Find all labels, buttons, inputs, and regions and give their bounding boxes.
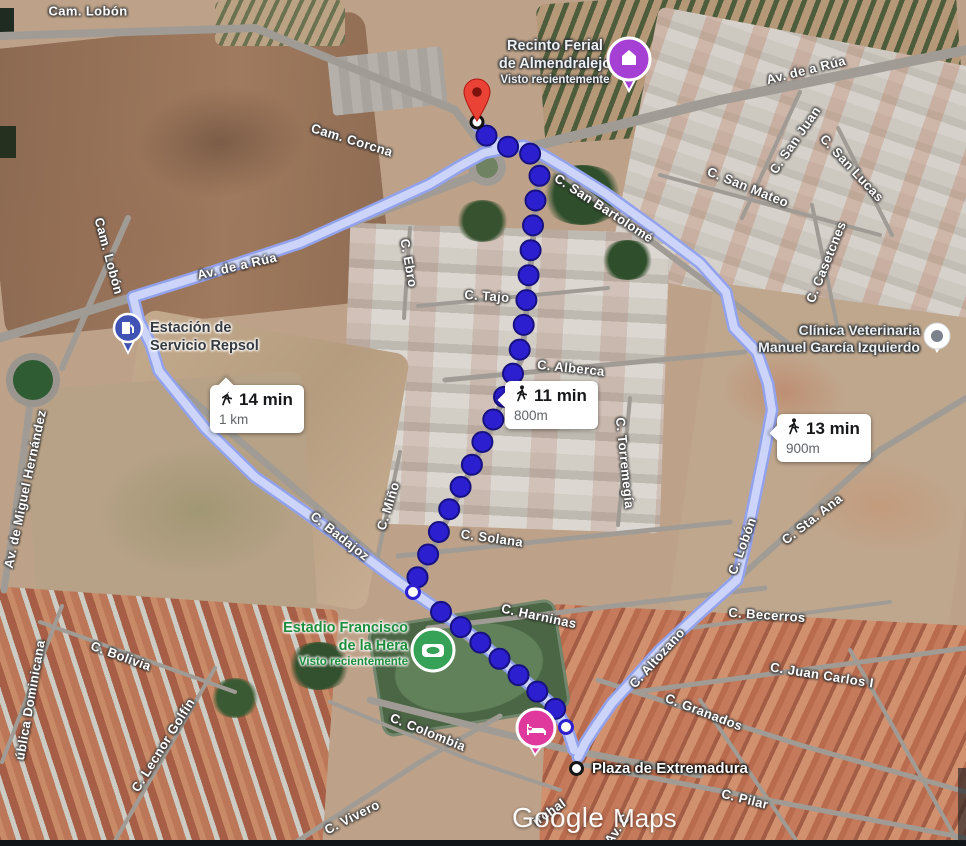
route-dot — [514, 315, 534, 335]
route-dot — [498, 137, 518, 157]
route-dot — [451, 477, 471, 497]
road — [418, 288, 608, 306]
route-via-point — [407, 586, 420, 599]
poi-name: Estación de — [150, 320, 259, 338]
road — [838, 128, 892, 235]
road — [290, 716, 500, 846]
stadium-pin[interactable] — [408, 625, 458, 680]
route-badge-13min[interactable]: 13 min 900m — [777, 414, 871, 462]
route-dot — [472, 432, 492, 452]
route-badge-14min[interactable]: 14 min 1 km — [210, 385, 304, 433]
route-dot — [523, 215, 543, 235]
gas-station-pin[interactable] — [110, 312, 146, 363]
badge-time: 13 min — [806, 419, 860, 439]
route-dot — [429, 522, 449, 542]
route-via-point — [560, 721, 573, 734]
route-dot — [521, 240, 541, 260]
poi-name: Servicio Repsol — [150, 338, 259, 356]
road — [0, 28, 487, 152]
poi-name: Plaza de Extremadura — [592, 760, 748, 777]
poi-clinica-veterinaria[interactable]: Clínica Veterinaria Manuel García Izquie… — [722, 322, 920, 356]
road — [112, 668, 215, 846]
badge-distance: 800m — [514, 408, 587, 423]
route-dot — [519, 265, 539, 285]
poi-plaza-extremadura[interactable]: Plaza de Extremadura — [592, 760, 748, 778]
road — [4, 382, 33, 590]
road — [2, 606, 62, 762]
walking-icon — [514, 385, 528, 407]
destination-pin[interactable] — [461, 77, 493, 128]
route-dot — [510, 340, 530, 360]
road — [445, 352, 745, 380]
route-badge-11min-selected[interactable]: 11 min 800m — [505, 381, 598, 429]
road — [532, 152, 790, 345]
route-dot — [509, 665, 529, 685]
route-dot — [490, 649, 510, 669]
badge-time: 14 min — [239, 390, 293, 410]
route-dot — [516, 290, 536, 310]
screen-edge-bar — [0, 840, 966, 846]
route-dot — [462, 455, 482, 475]
route-dot — [483, 410, 503, 430]
walking-icon — [786, 418, 800, 440]
road — [690, 602, 890, 628]
road — [618, 398, 630, 525]
route-dot — [527, 682, 547, 702]
origin-marker[interactable] — [569, 761, 584, 776]
road — [404, 228, 410, 318]
route-dot — [418, 545, 438, 565]
road — [660, 175, 880, 235]
road — [376, 452, 400, 565]
google-maps-watermark: GoogleMaps — [512, 802, 677, 834]
clinic-dot-icon — [931, 330, 943, 342]
route-dot — [526, 191, 546, 211]
poi-name: Clínica Veterinaria — [722, 322, 920, 339]
route-dot — [439, 499, 459, 519]
event-venue-pin[interactable] — [604, 34, 654, 101]
poi-name: Manuel García Izquierdo — [722, 339, 920, 356]
roundabout-center — [13, 360, 53, 400]
poi-name: Estadio Francisco — [256, 620, 408, 638]
watermark-google: Google — [512, 802, 604, 833]
hotel-pin[interactable] — [514, 706, 559, 763]
poi-subtitle: Visto recientemente — [256, 655, 408, 669]
badge-time: 11 min — [534, 386, 587, 406]
watermark-maps: Maps — [613, 803, 677, 833]
poi-estadio[interactable]: Estadio Francisco de la Hera Visto recie… — [256, 620, 408, 669]
route-dot — [408, 567, 428, 587]
route-dot — [470, 633, 490, 653]
road — [635, 648, 966, 692]
clinic-pin[interactable] — [922, 322, 952, 361]
badge-distance: 900m — [786, 441, 860, 456]
route-dot — [530, 166, 550, 186]
badge-distance: 1 km — [219, 412, 293, 427]
screen-edge-bar — [958, 768, 966, 842]
satellite-map[interactable]: Cam. LobónCam. LobónCam. CorcnaAv. de a … — [0, 0, 966, 846]
poi-estacion-repsol[interactable]: Estación de Servicio Repsol — [150, 320, 259, 355]
route-dot — [520, 144, 540, 164]
route-dot — [431, 602, 451, 622]
poi-name: de la Hera — [256, 638, 408, 656]
